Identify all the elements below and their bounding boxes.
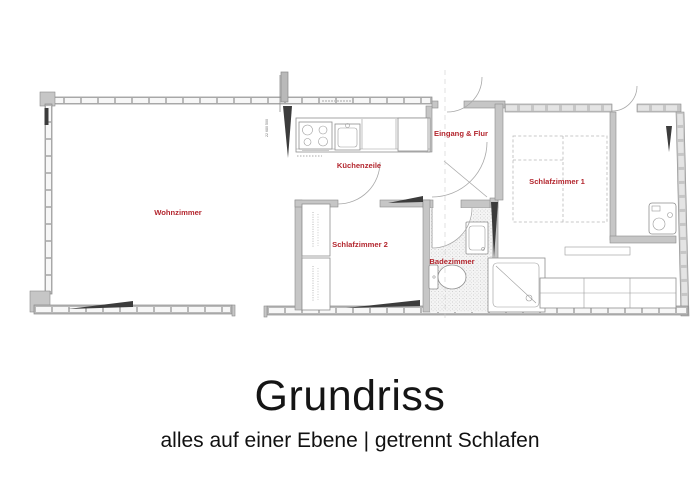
page: 22 680 500 Wohnzimmer Küchenzeile Eingan…: [0, 0, 700, 500]
reference-lines: 22 680 500: [265, 70, 445, 318]
room-label-kuechenzeile: Küchenzeile: [337, 161, 381, 170]
page-subtitle: alles auf einer Ebene | getrennt Schlafe…: [0, 429, 700, 453]
door-arc: [432, 142, 487, 197]
utility-room: [649, 203, 676, 234]
wardrobes: [302, 204, 330, 310]
room-label-wohnzimmer: Wohnzimmer: [154, 208, 202, 217]
wardrobe: [302, 258, 330, 310]
washbasin-icon: [466, 222, 488, 254]
room-label-eingang-flur: Eingang & Flur: [434, 129, 488, 138]
floor-plan-area: 22 680 500 Wohnzimmer Küchenzeile Eingan…: [0, 0, 700, 345]
floor-plan: 22 680 500 Wohnzimmer Küchenzeile Eingan…: [0, 0, 700, 345]
door-arc: [612, 86, 637, 111]
stove-icon: [299, 122, 332, 151]
door-leaf: [444, 161, 487, 197]
room-label-schlafzimmer2: Schlafzimmer 2: [332, 240, 388, 249]
window-marker-icon: [283, 106, 292, 158]
built-in-cabinets: [540, 247, 676, 308]
shower-icon: [488, 258, 545, 312]
room-label-badezimmer: Badezimmer: [429, 257, 474, 266]
kitchen-unit: [296, 118, 430, 156]
window-marker-icon: [666, 126, 672, 152]
fridge-icon: [398, 118, 428, 151]
wardrobe: [302, 204, 330, 256]
page-title: Grundriss: [0, 372, 700, 421]
sink-icon: [335, 124, 360, 151]
dimension-note: 22 680 500: [265, 119, 269, 137]
room-label-schlafzimmer1: Schlafzimmer 1: [529, 177, 585, 186]
toilet-icon: [429, 265, 466, 289]
washing-machine-icon: [649, 203, 676, 234]
